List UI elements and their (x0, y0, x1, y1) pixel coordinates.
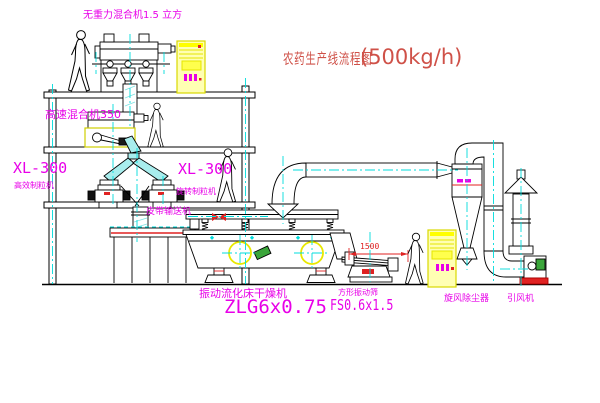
drawing-title: 农药生产线流程图 (283, 53, 372, 68)
control-cabinet-lower (428, 230, 456, 287)
belt-conveyor (110, 227, 195, 283)
person-figure-floor2 (148, 103, 163, 147)
label-belt-conveyor: 皮带输送机 (146, 208, 191, 217)
mixer-discharge-valves (103, 68, 153, 86)
control-cabinet-upper (177, 41, 205, 93)
label-cyclone: 旋风除尘器 (444, 295, 489, 304)
label-dryer-model: ZLG6x0.75 (224, 298, 327, 317)
label-sieve-model: FS0.6x1.5 (330, 298, 393, 313)
dryer-pedestals (205, 268, 335, 283)
floor-slab-middle (44, 147, 255, 153)
label-granulator-left-name: 高效制粒机 (14, 182, 54, 190)
cabinet-display-marks (184, 74, 197, 81)
label-granulator-right-model: XL-300 (178, 162, 232, 177)
y-chute (100, 153, 171, 185)
label-high-speed-mixer: 高速混合机350 (45, 109, 121, 120)
cabinet-display-marks (436, 264, 449, 271)
drawing-canvas: 无重力混合机1.5 立方 农药生产线流程图 (500kg/h) 高速混合机350… (0, 0, 600, 403)
fan-motor (536, 259, 545, 270)
gravity-free-mixer (92, 34, 175, 114)
fan-base (520, 278, 548, 284)
person-figure-roof (69, 31, 90, 91)
spring-hangers (202, 219, 333, 231)
label-dimension-1500: 1500 (360, 243, 379, 251)
label-induced-draft-fan: 引风机 (507, 295, 534, 304)
floor-slab-top (44, 92, 255, 98)
mixer-motor (158, 44, 171, 53)
label-granulator-right-name: 旋转制粒机 (176, 188, 216, 196)
vibrating-sieve (330, 233, 398, 282)
fluid-bed-dryer (183, 210, 344, 283)
induced-draft-fan (520, 256, 548, 284)
drawing-title-capacity: (500kg/h) (360, 47, 462, 68)
label-gravity-mixer: 无重力混合机1.5 立方 (83, 11, 182, 21)
label-granulator-left-model: XL-300 (13, 161, 67, 176)
